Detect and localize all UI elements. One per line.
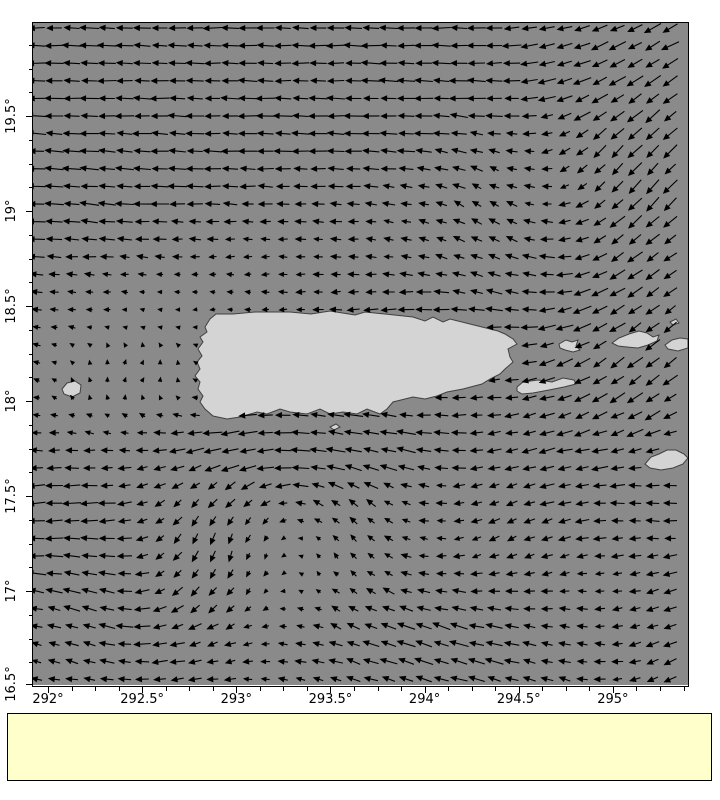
x-axis-minor-tick [566,687,567,691]
y-axis-minor-tick [29,567,33,568]
y-axis-minor-tick [29,544,33,545]
y-axis-major-tick [26,211,32,212]
y-axis-tick-label: 18.5° [4,284,20,328]
y-axis-minor-tick [29,259,33,260]
x-axis-minor-tick [542,687,543,691]
x-axis-minor-tick [589,687,590,691]
x-axis-minor-tick [283,687,284,691]
y-axis-tick-label: 18° [4,379,20,423]
x-axis-tick-label: 293.5° [285,693,375,707]
x-axis-minor-tick [95,687,96,691]
y-axis-minor-tick [29,235,33,236]
y-axis-minor-tick [29,449,33,450]
x-axis-minor-tick [119,687,120,691]
y-axis-tick-label: 17.5° [4,474,20,518]
x-axis-minor-tick [448,687,449,691]
x-axis-minor-tick [354,687,355,691]
y-axis-major-tick [26,401,32,402]
y-axis-minor-tick [29,330,33,331]
y-axis-major-tick [26,306,32,307]
x-axis-minor-tick [189,687,190,691]
x-axis-minor-tick [72,687,73,691]
x-axis-minor-tick [401,687,402,691]
y-axis-minor-tick [29,662,33,663]
x-axis-tick-label: 293° [191,693,281,707]
x-axis-minor-tick [660,687,661,691]
y-axis-minor-tick [29,282,33,283]
x-axis-minor-tick [684,687,685,691]
y-axis-major-tick [26,684,32,685]
x-axis-tick-label: 294° [380,693,470,707]
quiver-map-canvas [33,23,688,685]
y-axis-tick-label: 19° [4,189,20,233]
sea-velocity-map-figure: 292°292.5°293°293.5°294°294.5°295°16.5°1… [0,0,720,800]
y-axis-minor-tick [29,639,33,640]
x-axis-tick-label: 295° [568,693,658,707]
x-axis-minor-tick [378,687,379,691]
y-axis-tick-label: 19.5° [4,94,20,138]
y-axis-minor-tick [29,164,33,165]
y-axis-minor-tick [29,472,33,473]
x-axis-tick-label: 292.5° [97,693,187,707]
x-axis-minor-tick [213,687,214,691]
x-axis-tick-label: 294.5° [474,693,564,707]
x-axis-minor-tick [307,687,308,691]
y-axis-tick-label: 17° [4,569,20,613]
y-axis-minor-tick [29,520,33,521]
x-axis-minor-tick [472,687,473,691]
y-axis-minor-tick [29,187,33,188]
x-axis-minor-tick [166,687,167,691]
y-axis-major-tick [26,116,32,117]
y-axis-major-tick [26,591,32,592]
y-axis-minor-tick [29,615,33,616]
y-axis-minor-tick [29,425,33,426]
x-axis-minor-tick [260,687,261,691]
x-axis-minor-tick [636,687,637,691]
y-axis-minor-tick [29,377,33,378]
map-plot-area [32,22,689,687]
y-axis-minor-tick [29,69,33,70]
y-axis-minor-tick [29,140,33,141]
x-axis-minor-tick [495,687,496,691]
y-axis-minor-tick [29,354,33,355]
y-axis-major-tick [26,496,32,497]
y-axis-minor-tick [29,45,33,46]
y-axis-tick-label: 16.5° [4,662,20,706]
y-axis-minor-tick [29,92,33,93]
legend-box: Eastward Sea Water Velocity, Northward S… [7,713,712,781]
